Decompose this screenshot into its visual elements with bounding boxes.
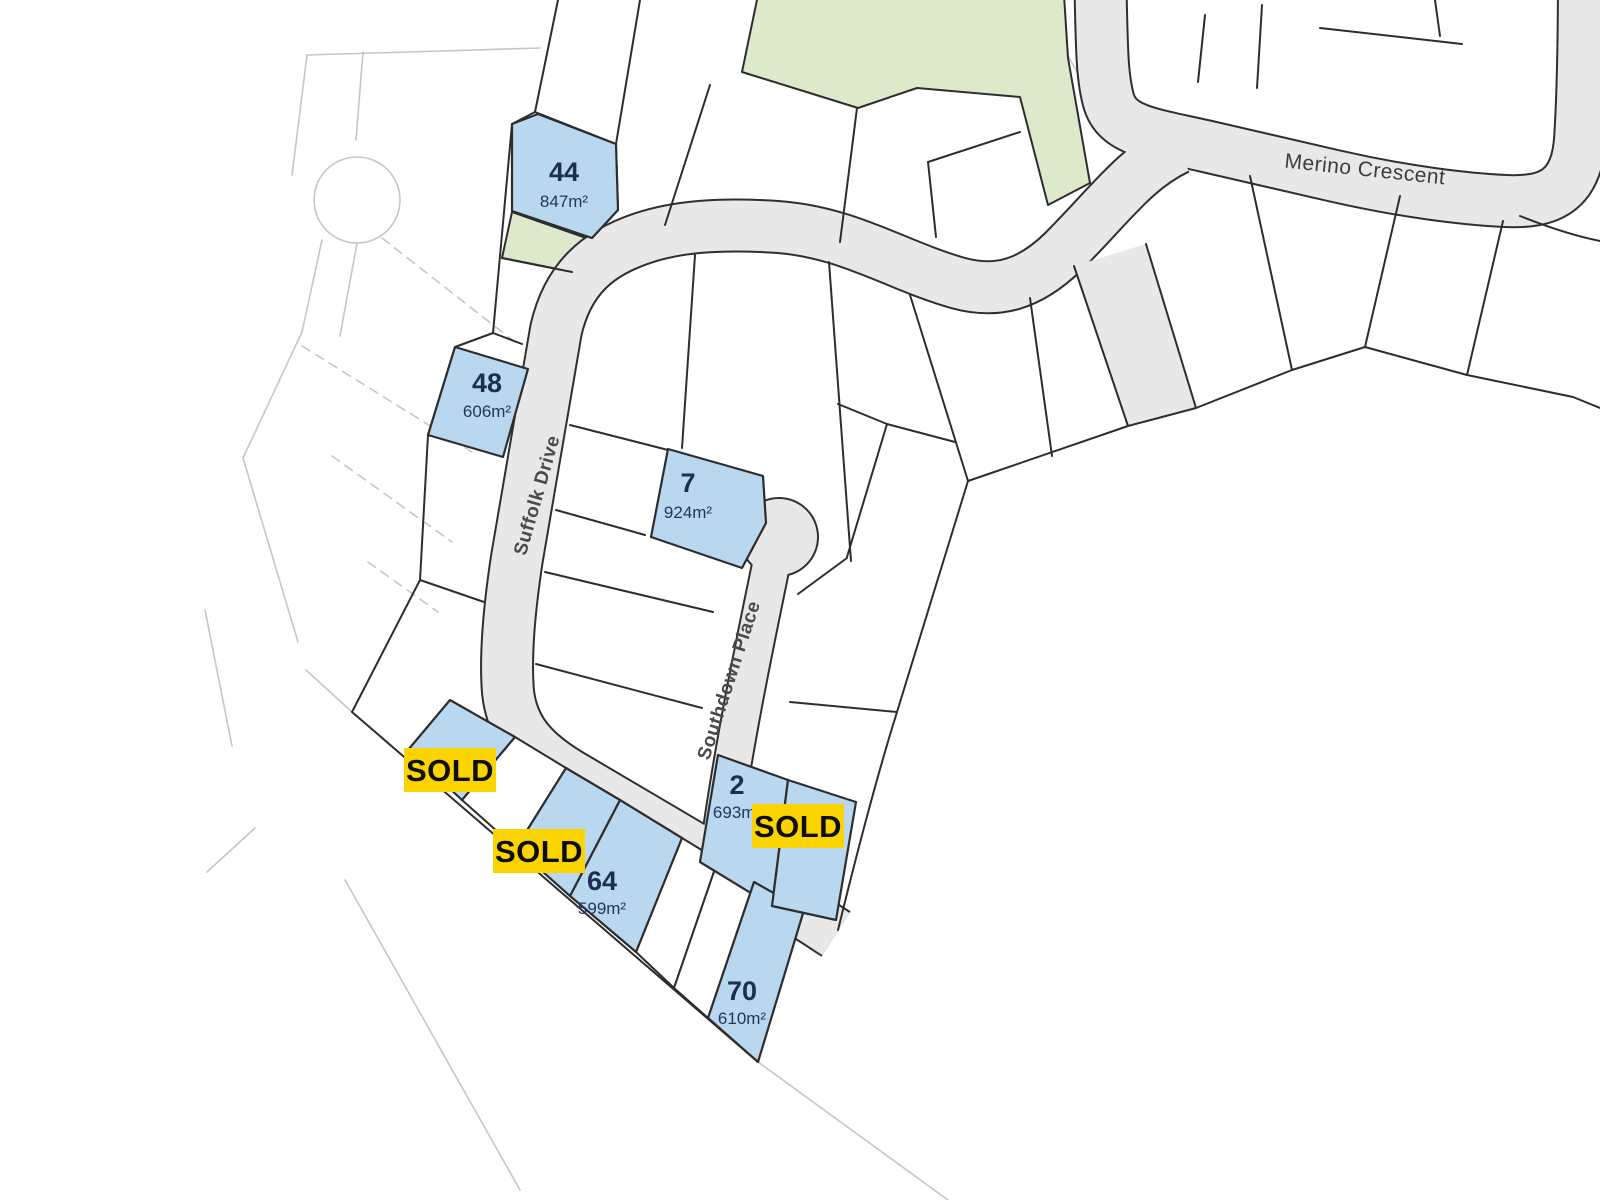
lot-70-area: 610m² (718, 1009, 767, 1028)
lot-48-number: 48 (472, 368, 502, 398)
faint-line (207, 828, 255, 872)
faint-boundary-extension (758, 1062, 948, 1200)
lot-divider (536, 664, 702, 708)
faint-dashed-line (368, 562, 438, 612)
lot-64-number: 64 (587, 866, 617, 896)
faint-line (302, 240, 322, 332)
sold-badge-text: SOLD (754, 809, 842, 844)
estate-map: 44 847m² 48 606m² 7 924m² 2 693m² 64 599… (0, 0, 1600, 1200)
lot-44-area: 847m² (540, 192, 589, 211)
lot-7-area: 924m² (664, 503, 713, 522)
lot-7-number: 7 (680, 468, 695, 498)
lot-44-number: 44 (549, 157, 579, 187)
faint-line (340, 243, 357, 336)
park-reserve-large (742, 0, 1090, 205)
lot-divider (420, 580, 484, 602)
faint-line (243, 332, 302, 458)
faint-dashed-line (332, 456, 452, 542)
lot-64-area: 599m² (578, 899, 627, 918)
lot-divider (570, 425, 668, 450)
faint-line (205, 610, 232, 746)
stage-boundary-east (910, 295, 968, 481)
lot-divider (1250, 176, 1292, 370)
lot-divider (1030, 298, 1052, 456)
lot-divider (1257, 5, 1262, 88)
faint-line (243, 458, 298, 642)
road-stub (1074, 244, 1196, 426)
faint-line (307, 48, 540, 55)
lot-divider (790, 702, 897, 712)
sold-badge-text: SOLD (406, 753, 494, 788)
lot-48-area: 606m² (463, 402, 512, 421)
lot-70-number: 70 (727, 976, 757, 1006)
lot-divider (847, 424, 887, 557)
stage-boundary-east (838, 481, 968, 930)
lot-divider (928, 162, 936, 237)
estate-map-canvas: 44 847m² 48 606m² 7 924m² 2 693m² 64 599… (0, 0, 1600, 1200)
faint-culdesac (314, 157, 400, 243)
stage-boundary-southeast (968, 347, 1600, 481)
lot-divider (616, 0, 640, 144)
faint-line (356, 52, 363, 140)
faint-line (292, 55, 307, 175)
lot-divider (1467, 221, 1503, 375)
lot-divider (928, 132, 1020, 162)
faint-line (345, 880, 520, 1190)
lot-divider (1198, 15, 1205, 82)
lot-divider (545, 572, 713, 612)
lot-divider (829, 262, 851, 561)
lot-divider (682, 255, 695, 448)
lot-divider (556, 510, 645, 535)
future-stage-linework (205, 0, 1082, 1200)
sold-lot-3 (772, 780, 856, 920)
lot-divider (887, 424, 955, 442)
lot-2-number: 2 (729, 770, 744, 800)
lot-divider (1435, 0, 1440, 36)
sold-badge-text: SOLD (495, 834, 583, 869)
lot-divider (1365, 196, 1400, 347)
lot-divider (493, 333, 522, 344)
lot-divider (838, 404, 887, 424)
faint-line (306, 670, 352, 712)
